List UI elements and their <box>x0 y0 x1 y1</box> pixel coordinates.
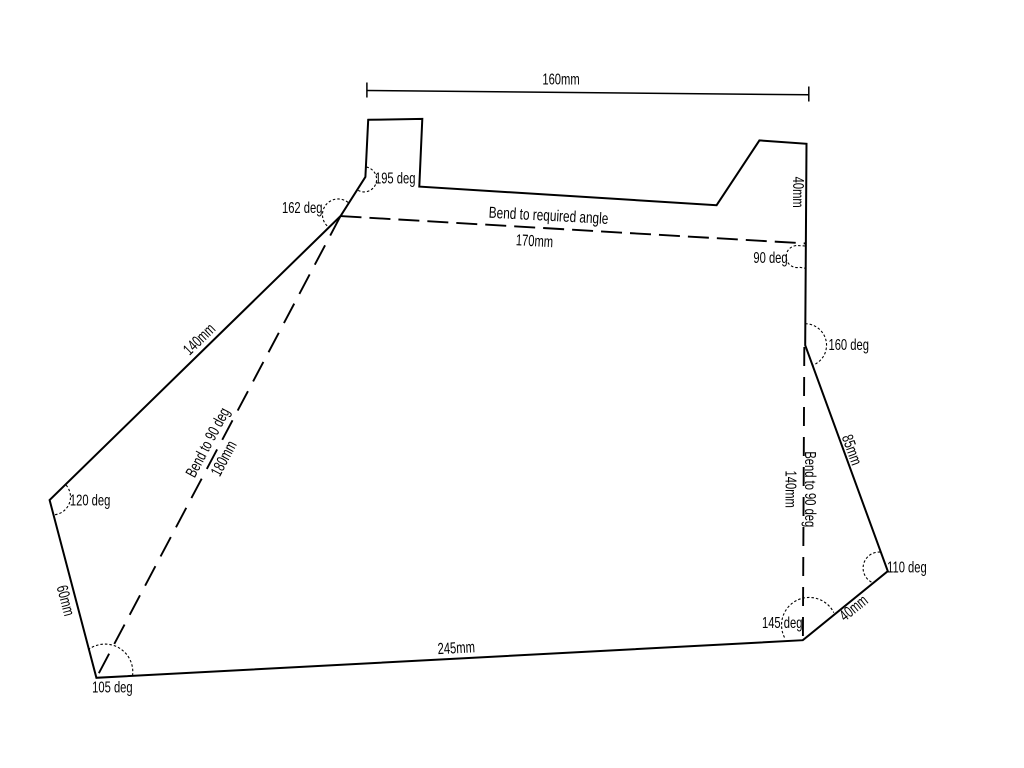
svg-text:40mm: 40mm <box>789 177 808 208</box>
svg-text:160 deg: 160 deg <box>828 335 868 354</box>
svg-text:162 deg: 162 deg <box>282 198 322 217</box>
svg-text:170mm: 170mm <box>515 230 553 250</box>
svg-text:195 deg: 195 deg <box>375 168 415 187</box>
svg-text:Bend to 90 deg: Bend to 90 deg <box>801 451 820 527</box>
svg-text:110 deg: 110 deg <box>887 557 927 576</box>
svg-text:245mm: 245mm <box>437 637 475 657</box>
svg-text:145 deg: 145 deg <box>762 613 802 632</box>
svg-text:120 deg: 120 deg <box>70 491 110 510</box>
svg-text:160mm: 160mm <box>542 69 579 88</box>
svg-text:140mm: 140mm <box>782 471 801 508</box>
svg-text:90 deg: 90 deg <box>753 248 787 267</box>
svg-text:105 deg: 105 deg <box>92 677 132 696</box>
